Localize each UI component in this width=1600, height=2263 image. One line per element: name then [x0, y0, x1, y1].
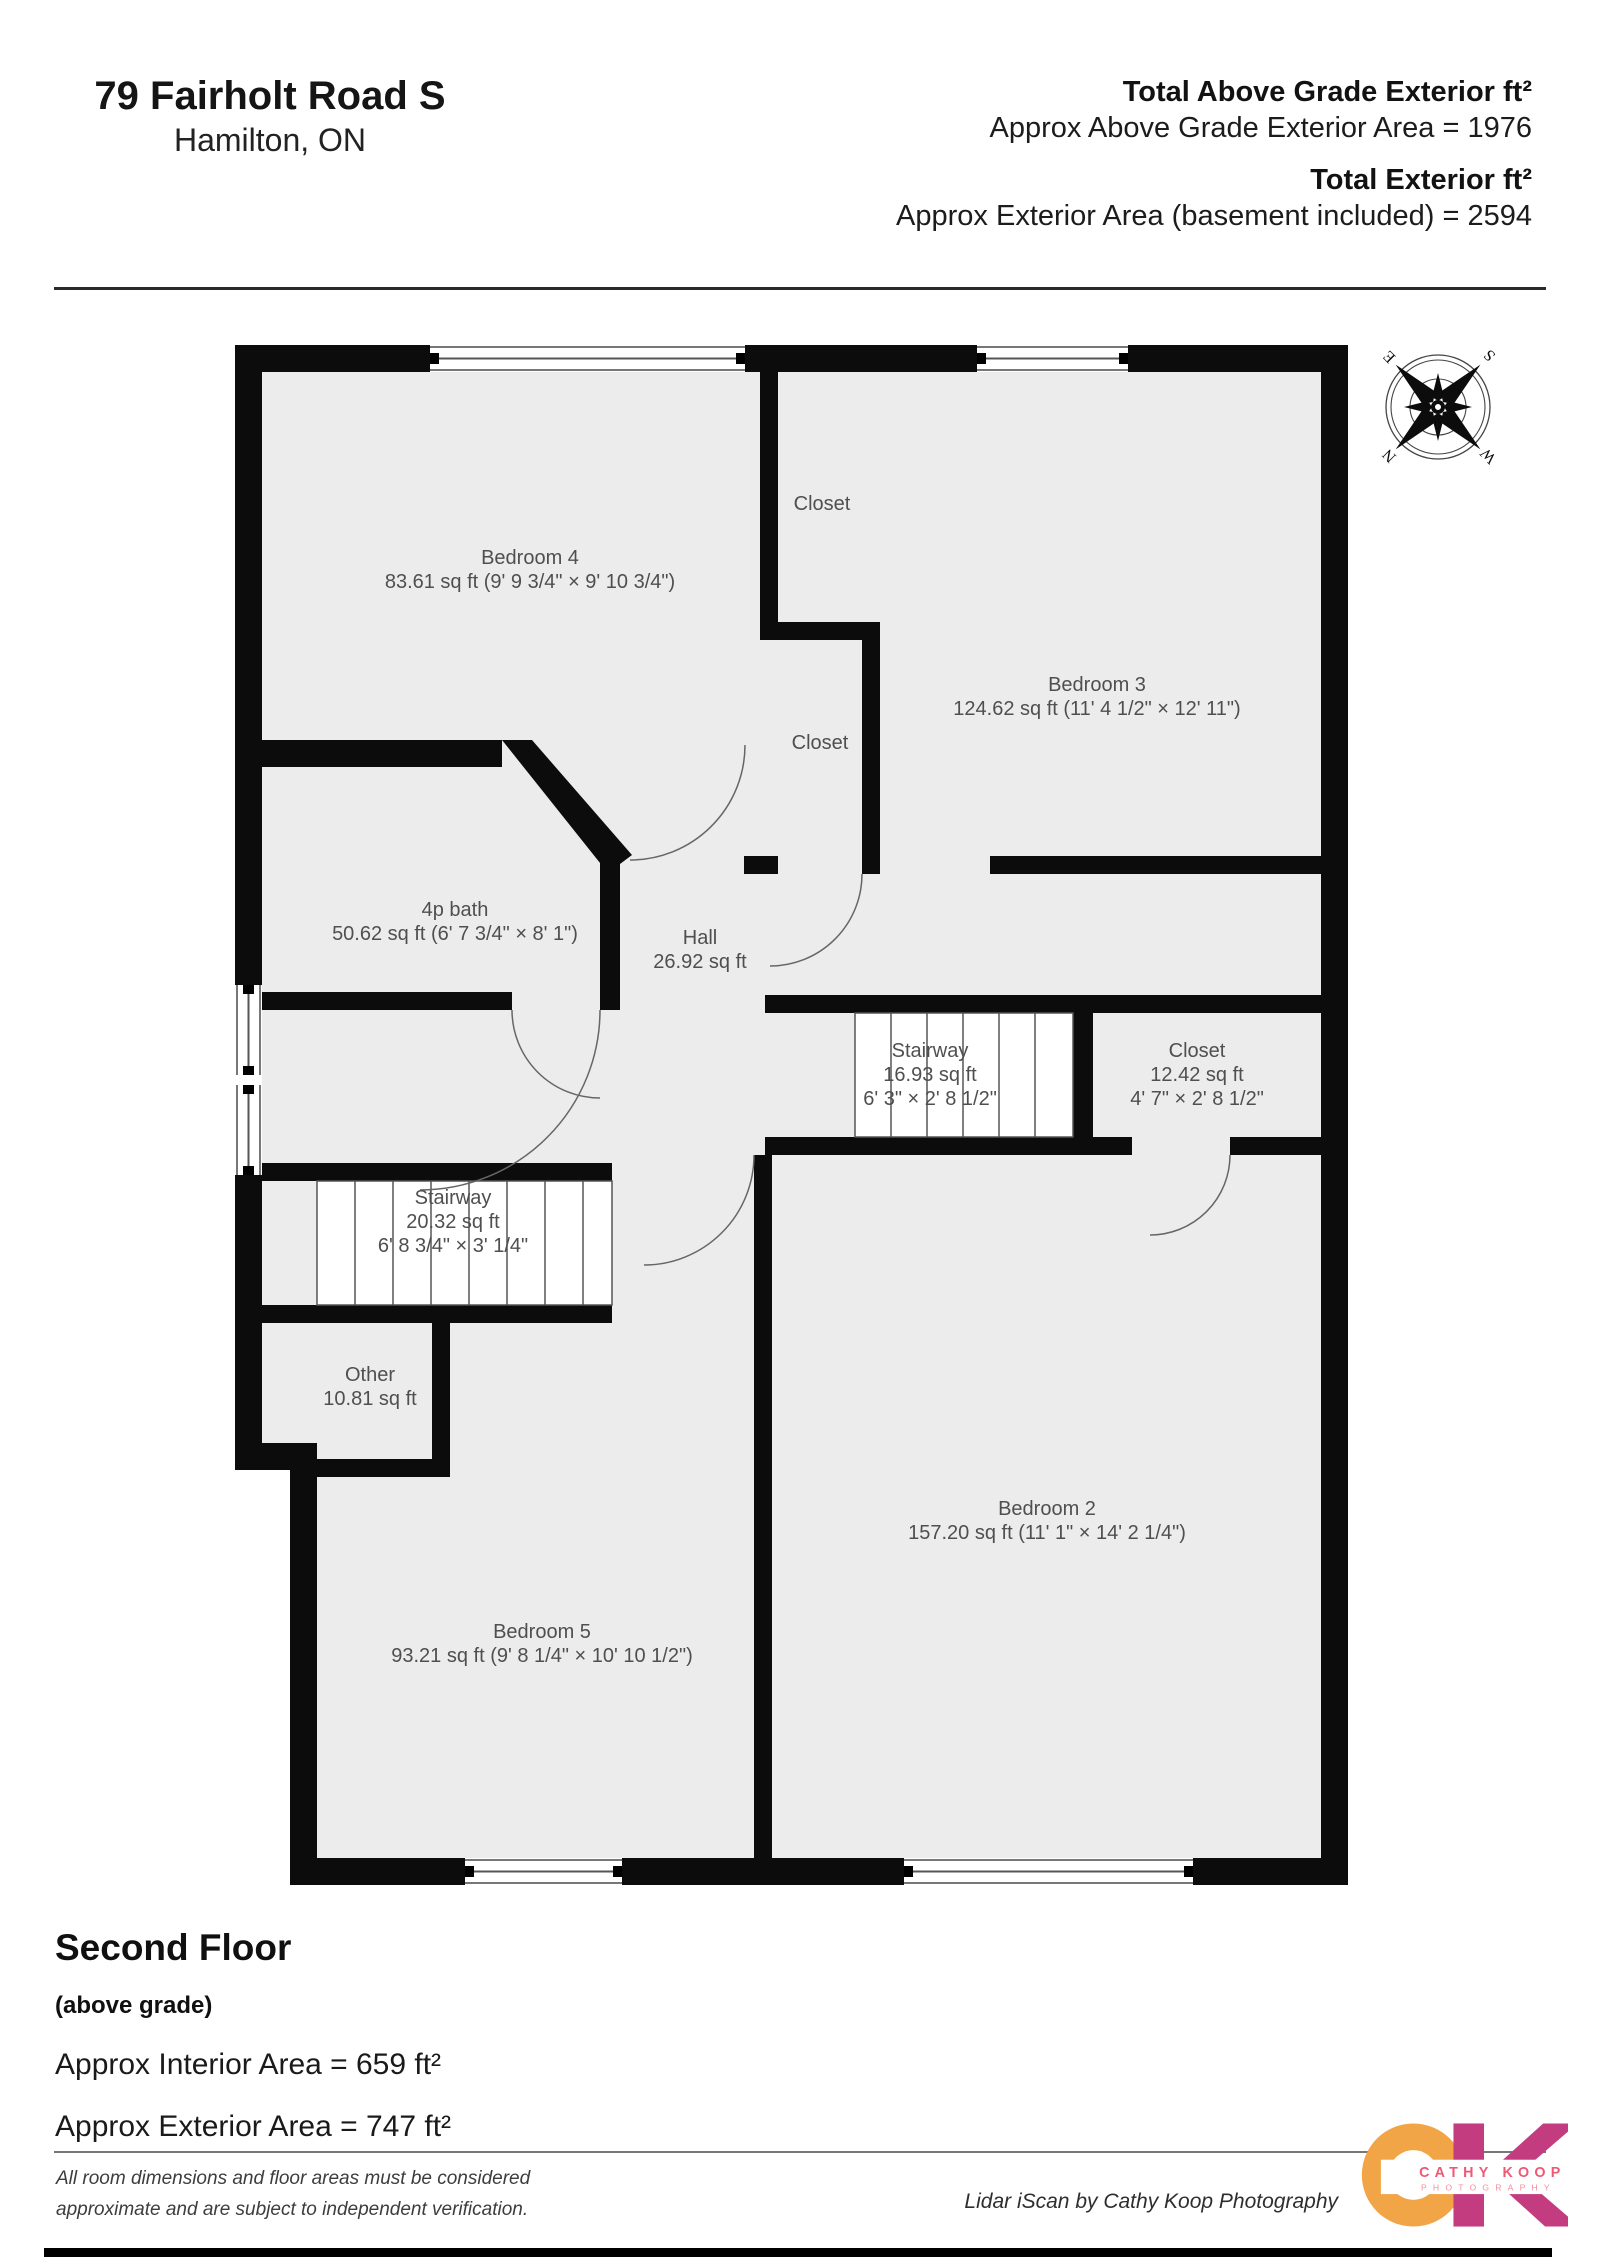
room-label-other: Other 10.81 sq ft [323, 1363, 416, 1411]
footer-divider [54, 2151, 1546, 2153]
window-bedroom2 [904, 1858, 1193, 1885]
page-bottom-bar [44, 2248, 1552, 2257]
room-label-bedroom-3: Bedroom 3 124.62 sq ft (11' 4 1/2" × 12'… [953, 673, 1240, 721]
room-area: 16.93 sq ft [863, 1063, 997, 1087]
compass-s-label: S [1481, 346, 1499, 364]
disclaimer-line-1: All room dimensions and floor areas must… [56, 2168, 530, 2190]
room-label-bedroom-4: Bedroom 4 83.61 sq ft (9' 9 3/4" × 9' 10… [385, 546, 675, 594]
room-name: Closet [1130, 1039, 1264, 1063]
room-name: Hall [653, 926, 746, 950]
window-bedroom3 [977, 345, 1128, 372]
window-bedroom5 [465, 1858, 622, 1885]
room-name: 4p bath [332, 898, 578, 922]
room-label-bedroom-5: Bedroom 5 93.21 sq ft (9' 8 1/4" × 10' 1… [391, 1620, 692, 1668]
compass-rose: N E S W [1331, 296, 1551, 516]
room-dimensions: 6' 8 3/4" × 3' 1/4" [378, 1234, 528, 1258]
room-dimensions: 93.21 sq ft (9' 8 1/4" × 10' 10 1/2") [391, 1644, 692, 1668]
room-name: Bedroom 3 [953, 673, 1240, 697]
window-left-1 [235, 985, 262, 1075]
room-dimensions: 157.20 sq ft (11' 1" × 14' 2 1/4") [908, 1521, 1186, 1545]
floor-summary-block: Second Floor (above grade) Approx Interi… [55, 1926, 451, 2144]
room-dimensions: 6' 3" × 2' 8 1/2" [863, 1087, 997, 1111]
floor-subtitle: (above grade) [55, 1992, 451, 2020]
compass-e-label: E [1380, 347, 1399, 366]
room-name: Closet [792, 731, 849, 755]
room-dimensions: 4' 7" × 2' 8 1/2" [1130, 1087, 1264, 1111]
logo-brand-sub: PHOTOGRAPHY [1421, 2182, 1556, 2192]
room-name: Bedroom 5 [391, 1620, 692, 1644]
room-name: Closet [794, 492, 851, 516]
floor-title: Second Floor [55, 1926, 451, 1970]
room-area: 12.42 sq ft [1130, 1063, 1264, 1087]
room-label-bath: 4p bath 50.62 sq ft (6' 7 3/4" × 8' 1") [332, 898, 578, 946]
floorplan-page: { "header": { "address_line1": "79 Fairh… [0, 0, 1600, 2263]
room-label-hall: Hall 26.92 sq ft [653, 926, 746, 974]
window-bedroom4 [430, 345, 745, 372]
room-label-closet-right: Closet 12.42 sq ft 4' 7" × 2' 8 1/2" [1130, 1039, 1264, 1111]
room-dimensions: 50.62 sq ft (6' 7 3/4" × 8' 1") [332, 922, 578, 946]
cathy-koop-logo: CATHY KOOP PHOTOGRAPHY [1358, 2112, 1568, 2238]
room-label-bedroom-2: Bedroom 2 157.20 sq ft (11' 1" × 14' 2 1… [908, 1497, 1186, 1545]
room-name: Other [323, 1363, 416, 1387]
photography-credit: Lidar iScan by Cathy Koop Photography [964, 2190, 1338, 2214]
room-label-closet-mid: Closet [792, 731, 849, 755]
room-label-stairway-left: Stairway 20.32 sq ft 6' 8 3/4" × 3' 1/4" [378, 1186, 528, 1258]
floorplan-drawing: N E S W [0, 0, 1600, 2263]
room-name: Stairway [378, 1186, 528, 1210]
room-dimensions: 83.61 sq ft (9' 9 3/4" × 9' 10 3/4") [385, 570, 675, 594]
room-label-closet-top: Closet [794, 492, 851, 516]
disclaimer-line-2: approximate and are subject to independe… [56, 2199, 528, 2221]
room-name: Stairway [863, 1039, 997, 1063]
room-name: Bedroom 2 [908, 1497, 1186, 1521]
exterior-area-line: Approx Exterior Area = 747 ft² [55, 2110, 451, 2144]
logo-brand-name: CATHY KOOP [1419, 2165, 1566, 2181]
room-area: 10.81 sq ft [323, 1387, 416, 1411]
room-area: 20.32 sq ft [378, 1210, 528, 1234]
interior-area-line: Approx Interior Area = 659 ft² [55, 2048, 451, 2082]
window-left-2 [235, 1085, 262, 1175]
compass-w-label: W [1477, 443, 1500, 466]
room-area: 26.92 sq ft [653, 950, 746, 974]
room-dimensions: 124.62 sq ft (11' 4 1/2" × 12' 11") [953, 697, 1240, 721]
room-name: Bedroom 4 [385, 546, 675, 570]
room-label-stairway-center: Stairway 16.93 sq ft 6' 3" × 2' 8 1/2" [863, 1039, 997, 1111]
